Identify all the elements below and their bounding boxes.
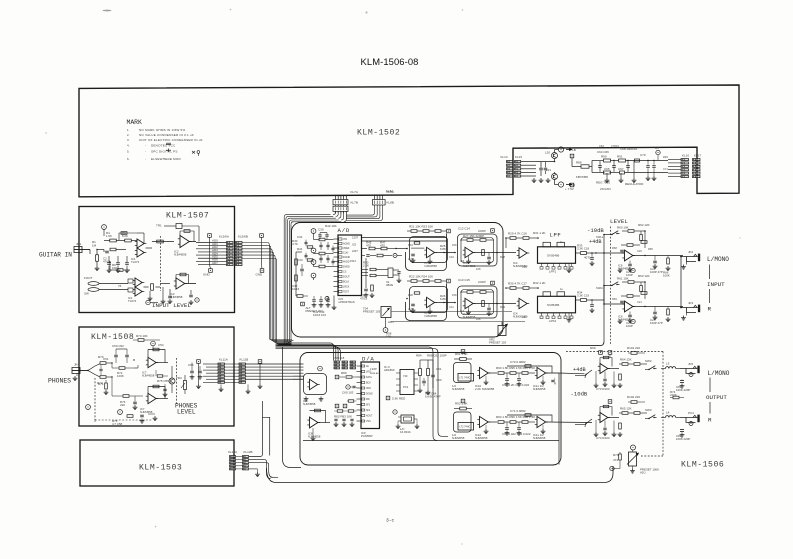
svg-text:AOUT: AOUT xyxy=(366,414,373,417)
svg-text:KL15: KL15 xyxy=(515,155,522,159)
svg-text:CLKI: CLKI xyxy=(343,252,349,255)
svg-text:R91: R91 xyxy=(617,155,623,159)
svg-text:NJM4558: NJM4558 xyxy=(303,402,316,406)
svg-text:LRCK: LRCK xyxy=(343,286,350,289)
svg-text:IC3: IC3 xyxy=(460,309,465,313)
svg-text:R65 12K: R65 12K xyxy=(620,407,632,411)
svg-text:C74 R104: C74 R104 xyxy=(596,436,610,440)
svg-text:R88: R88 xyxy=(576,161,582,165)
svg-text:INPUT LEVEL: INPUT LEVEL xyxy=(152,302,191,309)
svg-text:C30: C30 xyxy=(318,228,324,232)
svg-text:KL7A: KL7A xyxy=(351,190,358,194)
svg-text:KLM-1508: KLM-1508 xyxy=(91,333,134,342)
svg-text:C70: C70 xyxy=(640,153,646,157)
svg-text:10K: 10K xyxy=(386,335,391,339)
svg-text:6.: 6. xyxy=(127,157,130,161)
svg-text:KL5/6A: KL5/6A xyxy=(219,235,229,239)
svg-text:R101 220: R101 220 xyxy=(627,346,640,350)
svg-text:3.: 3. xyxy=(127,138,130,142)
svg-text:100K: 100K xyxy=(117,374,124,378)
svg-text:AD1860: AD1860 xyxy=(384,368,395,372)
svg-text:740: 740 xyxy=(403,374,408,378)
svg-text:FB7/FB8: FB7/FB8 xyxy=(576,175,588,179)
svg-text:+ 7.5V: + 7.5V xyxy=(565,187,574,191)
svg-text:C67: C67 xyxy=(618,167,624,171)
svg-text:C67 0.022 C69 0.022: C67 0.022 C69 0.022 xyxy=(502,432,531,436)
svg-text:10K: 10K xyxy=(476,267,481,271)
svg-text:1513: 1513 xyxy=(350,259,356,263)
svg-text:R29 4.7K C16: R29 4.7K C16 xyxy=(508,232,527,236)
svg-text:C51: C51 xyxy=(103,357,109,361)
svg-text:C54: C54 xyxy=(158,343,164,347)
svg-text:2.2K NJM2058: 2.2K NJM2058 xyxy=(475,387,495,391)
svg-text:R90: R90 xyxy=(601,155,607,159)
svg-text:C31: C31 xyxy=(297,235,303,239)
svg-text:10K: 10K xyxy=(112,266,117,270)
svg-text:DGND: DGND xyxy=(366,393,373,395)
svg-text:LEVEL: LEVEL xyxy=(177,409,196,416)
svg-text:SW1b: SW1b xyxy=(596,286,604,290)
svg-text:C70 0.0082: C70 0.0082 xyxy=(510,360,526,364)
svg-text:3-c: 3-c xyxy=(386,518,395,524)
svg-text:R31 1.2K: R31 1.2K xyxy=(533,231,546,235)
svg-text:C64 C66: C64 C66 xyxy=(597,150,609,154)
svg-text:-: - xyxy=(145,144,146,148)
svg-text:-10dB: -10dB xyxy=(587,227,604,234)
svg-text:KLM-1507: KLM-1507 xyxy=(166,212,209,221)
svg-text:R19: R19 xyxy=(408,243,413,247)
svg-text:PRESET 103: PRESET 103 xyxy=(489,341,507,345)
svg-text:2237: 2237 xyxy=(352,249,358,253)
svg-text:L/MONO: L/MONO xyxy=(707,256,729,263)
svg-text:JK5: JK5 xyxy=(688,362,694,366)
svg-text:10/16: 10/16 xyxy=(292,287,300,291)
svg-text:1M: 1M xyxy=(92,243,97,247)
svg-text:C16: C16 xyxy=(522,265,527,269)
svg-text:C20: C20 xyxy=(637,249,642,253)
svg-text:UNIT OF ELECTRIC CONDENSER IN: UNIT OF ELECTRIC CONDENSER IN uF xyxy=(139,138,203,142)
svg-text:10/16 103: 10/16 103 xyxy=(313,313,326,317)
svg-text:NJM2058: NJM2058 xyxy=(475,436,488,440)
svg-text:BCK: BCK xyxy=(366,382,371,384)
svg-text:TR3: TR3 xyxy=(176,376,182,380)
svg-text:KL8A: KL8A xyxy=(386,189,393,193)
svg-text:C63: C63 xyxy=(436,378,442,382)
svg-text:1u: 1u xyxy=(560,240,563,244)
svg-text:10K: 10K xyxy=(476,317,481,321)
svg-text:C66 2.2K C68 0.022: C66 2.2K C68 0.022 xyxy=(502,383,530,387)
svg-text:100P 47P: 100P 47P xyxy=(650,270,663,274)
svg-text:NJM4558: NJM4558 xyxy=(170,295,183,299)
svg-text:R93: R93 xyxy=(663,155,668,159)
svg-text:KL14: KL14 xyxy=(501,155,508,159)
svg-text:1u: 1u xyxy=(560,287,563,291)
svg-text:MD: MD xyxy=(366,399,370,401)
svg-text:KL11A: KL11A xyxy=(219,358,228,362)
svg-text:100K: 100K xyxy=(663,274,670,278)
svg-text:NJM2058: NJM2058 xyxy=(533,387,546,391)
svg-text:C10: C10 xyxy=(449,255,454,259)
svg-text:SPC DIGITAL PS: SPC DIGITAL PS xyxy=(151,150,178,154)
svg-text:TR1: TR1 xyxy=(156,224,162,228)
svg-text:R85 C62 100P: R85 C62 100P xyxy=(427,354,447,358)
svg-text:-: - xyxy=(145,157,146,161)
svg-text:-: - xyxy=(145,150,146,154)
svg-text:INPUT: INPUT xyxy=(707,281,725,288)
svg-text:MARK: MARK xyxy=(127,119,143,126)
svg-text:PO1: PO1 xyxy=(403,385,409,389)
svg-text:NJM4558: NJM4558 xyxy=(425,264,438,268)
svg-text:C73 R103: C73 R103 xyxy=(596,387,610,391)
svg-text:384fs: 384fs xyxy=(386,283,394,287)
svg-text:R102 220: R102 220 xyxy=(627,395,640,399)
svg-text:JK4: JK4 xyxy=(74,363,80,367)
svg-text:NJM4558: NJM4558 xyxy=(142,374,155,378)
svg-text:LPF1: LPF1 xyxy=(549,270,557,274)
svg-text:470/10: 470/10 xyxy=(611,144,619,148)
svg-text:C71: C71 xyxy=(663,167,668,171)
svg-text:R: R xyxy=(708,306,712,313)
svg-text:GND: GND xyxy=(203,273,211,277)
svg-text:R65: R65 xyxy=(648,247,653,251)
svg-text:DGND: DGND xyxy=(343,256,350,259)
svg-text:6.8/50 470P: 6.8/50 470P xyxy=(425,395,441,399)
svg-text:R30 4.7K C17: R30 4.7K C17 xyxy=(508,282,527,286)
svg-text:LPF: LPF xyxy=(550,232,562,239)
svg-text:NO MARK OHMS IN 1/8W 5%: NO MARK OHMS IN 1/8W 5% xyxy=(139,128,185,132)
svg-text:C68 1000/16: C68 1000/16 xyxy=(620,147,638,151)
svg-text:R79: R79 xyxy=(613,453,619,457)
svg-text:KL17: KL17 xyxy=(694,154,701,158)
svg-text:5.: 5. xyxy=(127,150,130,154)
svg-text:47/16: 47/16 xyxy=(360,297,368,301)
svg-text:470: 470 xyxy=(380,244,385,248)
svg-text:C13 C15: C13 C15 xyxy=(458,278,470,282)
svg-text:KL12A: KL12A xyxy=(228,450,237,454)
svg-text:PO1: PO1 xyxy=(688,411,694,415)
svg-text:1.5K: 1.5K xyxy=(106,234,112,238)
svg-text:R69: R69 xyxy=(612,297,617,301)
svg-text:NJM2058: NJM2058 xyxy=(452,387,465,391)
svg-text:C56: C56 xyxy=(188,363,194,367)
svg-text:GUITAR IN: GUITAR IN xyxy=(39,251,72,258)
svg-text:100K 220P: 100K 220P xyxy=(676,437,690,441)
svg-text:R20: R20 xyxy=(408,293,413,297)
svg-text:SV05486: SV05486 xyxy=(547,303,560,307)
svg-text:R32 1.2K: R32 1.2K xyxy=(533,281,546,285)
svg-text:NJM4558: NJM4558 xyxy=(463,264,476,268)
svg-text:NJM2058: NJM2058 xyxy=(533,436,546,440)
svg-text:DVDD: DVDD xyxy=(343,266,350,269)
svg-text:GND: GND xyxy=(256,273,264,277)
svg-text:L20: L20 xyxy=(545,151,550,155)
svg-text:R82 R83 10K: R82 R83 10K xyxy=(334,415,352,419)
svg-text:6.8K: 6.8K xyxy=(440,297,446,301)
svg-text:C12 C14: C12 C14 xyxy=(458,227,470,231)
svg-text:4.7K: 4.7K xyxy=(292,242,298,246)
svg-text:L4: L4 xyxy=(666,411,670,415)
svg-text:FOOT: FOOT xyxy=(84,276,92,280)
svg-text:R41: R41 xyxy=(297,247,303,251)
svg-text:BCLK: BCLK xyxy=(343,281,350,284)
svg-text:TEST: TEST xyxy=(343,291,350,294)
svg-text:C50 C52: C50 C52 xyxy=(112,344,124,348)
svg-text:SW2: SW2 xyxy=(645,359,652,363)
svg-text:OUTPUT: OUTPUT xyxy=(706,394,727,401)
svg-text:C61: C61 xyxy=(436,367,442,371)
svg-text:2 EXP: 2 EXP xyxy=(370,368,377,371)
svg-text:SW: SW xyxy=(84,292,89,296)
svg-text:KL11B: KL11B xyxy=(240,358,249,362)
svg-text:KL5/6B: KL5/6B xyxy=(238,235,248,239)
svg-text:3.3K C19: 3.3K C19 xyxy=(577,294,589,298)
svg-text:KL8B: KL8B xyxy=(387,200,394,204)
svg-text:TL072: TL072 xyxy=(128,299,137,303)
svg-text:AGND: AGND xyxy=(343,243,350,246)
svg-text:R27 15K 2200P: R27 15K 2200P xyxy=(463,234,484,238)
svg-text:3.3K C18: 3.3K C18 xyxy=(577,247,589,251)
svg-text:R42 10K: R42 10K xyxy=(325,224,337,228)
svg-text:KLM-1502: KLM-1502 xyxy=(357,128,400,137)
svg-text:R: R xyxy=(708,416,712,423)
svg-text:1207: 1207 xyxy=(352,236,359,240)
svg-text:R28: R28 xyxy=(500,255,505,259)
svg-text:4.: 4. xyxy=(127,144,130,148)
svg-text:C65: C65 xyxy=(604,167,610,171)
svg-text:PCM56P: PCM56P xyxy=(361,434,373,438)
svg-text:8.2K: 8.2K xyxy=(122,234,128,238)
svg-text:2SC1815: 2SC1815 xyxy=(600,187,611,191)
svg-text:TL072: TL072 xyxy=(131,260,140,264)
svg-text:100P 47P: 100P 47P xyxy=(650,321,663,325)
svg-text:uPD6376GS: uPD6376GS xyxy=(339,300,355,304)
svg-text:LT2 74HC: LT2 74HC xyxy=(460,426,471,429)
svg-text:R80: R80 xyxy=(341,371,347,375)
svg-text:VSS: VSS xyxy=(366,421,371,423)
svg-text:100K 220P: 100K 220P xyxy=(676,388,690,392)
svg-text:2200P: 2200P xyxy=(478,280,486,284)
svg-text:R94 1.5K R96 1.5K R98 1.5K: R94 1.5K R96 1.5K R98 1.5K xyxy=(496,415,535,419)
svg-text:16.9344: 16.9344 xyxy=(400,430,411,434)
svg-text:KLM-1506: KLM-1506 xyxy=(681,461,724,470)
svg-text:LPF2: LPF2 xyxy=(549,319,557,323)
svg-text:+4dB: +4dB xyxy=(589,239,601,245)
svg-text:R68: R68 xyxy=(612,246,617,250)
svg-text:SF1: SF1 xyxy=(366,404,371,406)
svg-text:C60 103: C60 103 xyxy=(342,391,354,395)
svg-text:KL16: KL16 xyxy=(682,154,689,158)
svg-text:C21: C21 xyxy=(637,300,642,304)
svg-text:R73: R73 xyxy=(97,381,103,385)
svg-text:R91 1.8K: R91 1.8K xyxy=(455,352,468,356)
svg-text:PHONES: PHONES xyxy=(48,378,71,385)
svg-text:KLM-1506-08: KLM-1506-08 xyxy=(361,56,419,67)
svg-text:C71 0.0082: C71 0.0082 xyxy=(510,409,526,413)
svg-text:JK3: JK3 xyxy=(688,301,694,305)
svg-text:NJM2058: NJM2058 xyxy=(452,436,465,440)
svg-text:4071: 4071 xyxy=(584,256,591,260)
svg-text:NO VALUE CONDENSER IN 0.1 uF: NO VALUE CONDENSER IN 0.1 uF xyxy=(139,133,194,137)
svg-text:100P: 100P xyxy=(626,324,633,328)
svg-text:ADJ: ADJ xyxy=(388,320,394,324)
svg-text:KLM-1503: KLM-1503 xyxy=(139,463,182,472)
svg-text:DENOTES VCC: DENOTES VCC xyxy=(151,144,176,148)
svg-text:R74 10K: R74 10K xyxy=(136,334,148,338)
svg-text:DOUT: DOUT xyxy=(343,276,350,279)
svg-text:JK2: JK2 xyxy=(688,250,694,254)
svg-text:SW1a: SW1a xyxy=(596,235,604,239)
svg-text:15K: 15K xyxy=(452,293,457,297)
svg-text:NJM4558: NJM4558 xyxy=(425,314,438,318)
svg-text:4.7K: 4.7K xyxy=(408,257,414,261)
svg-text:70B 4.8: 70B 4.8 xyxy=(334,356,345,360)
svg-text:R75 C55: R75 C55 xyxy=(157,379,169,383)
svg-text:LEVEL: LEVEL xyxy=(610,218,629,225)
svg-text:C11: C11 xyxy=(449,305,454,309)
svg-text:C17: C17 xyxy=(522,315,527,319)
svg-text:REG 7805: REG 7805 xyxy=(596,181,610,185)
svg-text:R60 10K: R60 10K xyxy=(617,226,629,230)
svg-text:L/MONO: L/MONO xyxy=(708,370,730,377)
svg-text:R21 10K R23 10K: R21 10K R23 10K xyxy=(409,225,433,229)
svg-text:15K: 15K xyxy=(452,243,457,247)
svg-text:ADJ: ADJ xyxy=(640,471,646,475)
svg-text:R29: R29 xyxy=(500,305,505,309)
svg-text:2.: 2. xyxy=(127,133,130,137)
svg-text:D4: D4 xyxy=(655,146,659,150)
svg-text:IC5: IC5 xyxy=(352,243,357,247)
svg-text:22K: 22K xyxy=(120,403,125,407)
svg-text:SV05486: SV05486 xyxy=(547,254,560,258)
svg-text:JK1: JK1 xyxy=(76,242,82,246)
svg-text:IC3: IC3 xyxy=(460,259,465,263)
svg-text:+4dB: +4dB xyxy=(573,367,586,373)
svg-text:76: 76 xyxy=(118,284,122,288)
svg-text:220K: 220K xyxy=(670,393,677,397)
svg-text:REGULATOR: REGULATOR xyxy=(625,182,644,186)
svg-text:VREF: VREF xyxy=(343,247,350,250)
svg-text:R64 12K: R64 12K xyxy=(620,358,632,362)
svg-text:L3: L3 xyxy=(666,362,670,366)
svg-text:CS: CS xyxy=(343,271,347,274)
svg-text:A/D: A/D xyxy=(338,227,351,234)
svg-text:R61 10K: R61 10K xyxy=(617,277,629,281)
svg-text:SW3: SW3 xyxy=(645,408,652,412)
svg-text:4.7 C58: 4.7 C58 xyxy=(112,422,123,426)
svg-text:5.3K RED: 5.3K RED xyxy=(392,397,406,401)
svg-text:NJM4558: NJM4558 xyxy=(174,253,187,257)
svg-text:R93 1.5K R95 1.5K R97 1.5K: R93 1.5K R95 1.5K R97 1.5K xyxy=(496,366,535,370)
svg-text:-10dB: -10dB xyxy=(571,391,588,398)
svg-text:R22 10K R24 10K: R22 10K R24 10K xyxy=(409,275,433,279)
svg-text:R84: R84 xyxy=(416,354,422,358)
svg-text:6.8K: 6.8K xyxy=(440,247,446,251)
svg-text:DATA: DATA xyxy=(366,376,372,379)
svg-text:NJM4558: NJM4558 xyxy=(140,410,153,414)
svg-text:C63: C63 xyxy=(599,144,604,148)
svg-text:C33: C33 xyxy=(297,258,303,262)
svg-text:NJM4558: NJM4558 xyxy=(463,315,476,319)
svg-text:SF2: SF2 xyxy=(366,410,371,412)
svg-text:AVDD: AVDD xyxy=(343,261,350,264)
svg-text:VIN: VIN xyxy=(343,238,347,241)
svg-text:LT1 74HC: LT1 74HC xyxy=(460,377,471,380)
svg-text:R92 1.8K: R92 1.8K xyxy=(455,402,468,406)
svg-text:R99: R99 xyxy=(590,346,596,350)
svg-text:2200P: 2200P xyxy=(478,229,486,233)
svg-text:1.: 1. xyxy=(127,128,130,132)
svg-text:R63 12K: R63 12K xyxy=(638,274,650,278)
svg-text:KL7B: KL7B xyxy=(351,200,358,204)
svg-text:VDD: VDD xyxy=(366,388,371,390)
svg-text:473: 473 xyxy=(613,458,618,462)
svg-text:KL12B: KL12B xyxy=(244,450,253,454)
svg-text:+B: +B xyxy=(572,148,576,152)
svg-text:4.7K: 4.7K xyxy=(408,307,414,311)
svg-text:ELSEWHERE MOD: ELSEWHERE MOD xyxy=(151,157,182,161)
svg-text:MDM ADJ: MDM ADJ xyxy=(370,372,380,375)
svg-text:LE: LE xyxy=(366,366,369,368)
svg-text:AD7: AD7 xyxy=(212,261,218,265)
svg-text:470: 470 xyxy=(366,244,371,248)
svg-text:R62 12K: R62 12K xyxy=(638,223,650,227)
svg-text:PRESET 103: PRESET 103 xyxy=(363,310,381,314)
